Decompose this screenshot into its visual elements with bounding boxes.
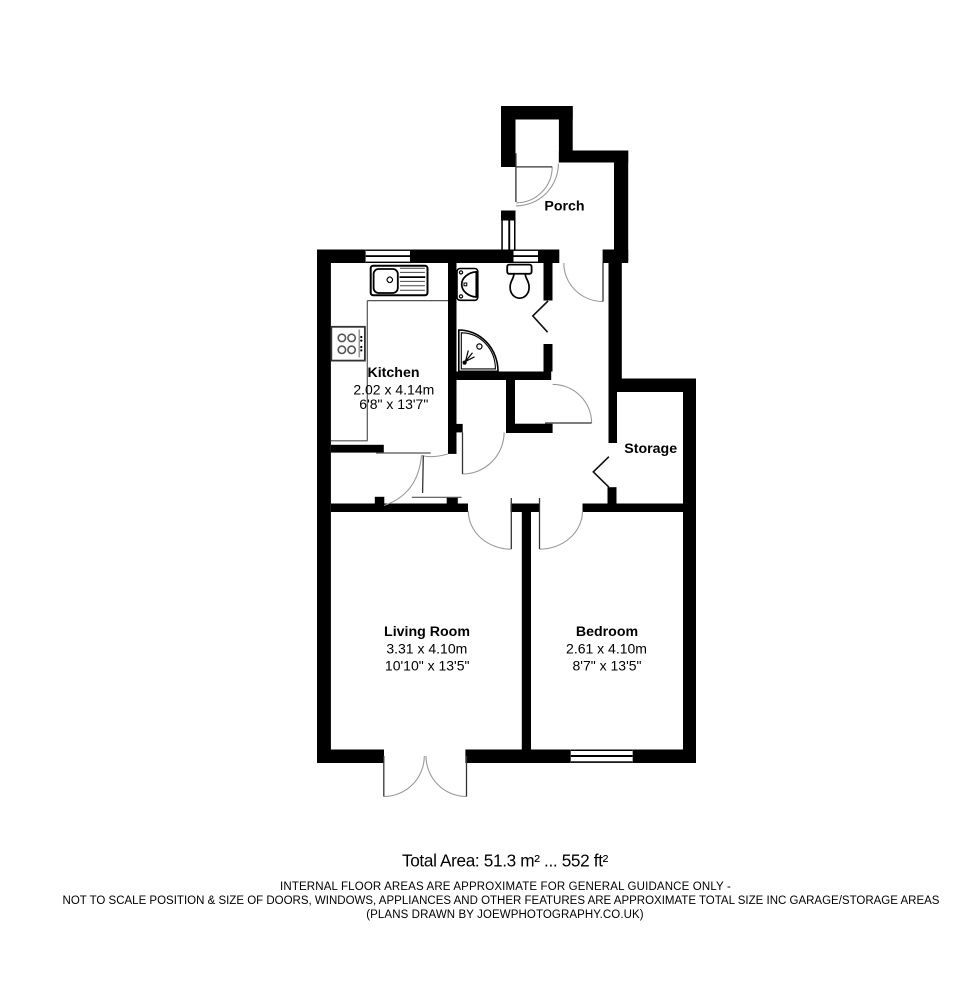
svg-text:2.61 x 4.10m: 2.61 x 4.10m	[566, 640, 647, 656]
svg-text:2.02 x 4.14m: 2.02 x 4.14m	[353, 381, 434, 397]
svg-text:INTERNAL FLOOR AREAS ARE APPRO: INTERNAL FLOOR AREAS ARE APPROXIMATE FOR…	[280, 881, 731, 893]
svg-text:10'10" x 13'5": 10'10" x 13'5"	[385, 657, 470, 673]
svg-text:Porch: Porch	[544, 198, 584, 214]
svg-text:NOT TO SCALE POSITION & SIZE O: NOT TO SCALE POSITION & SIZE OF DOORS, W…	[63, 895, 940, 907]
svg-text:6'8" x 13'7": 6'8" x 13'7"	[359, 396, 428, 412]
svg-text:Total Area: 51.3 m² ... 552 ft: Total Area: 51.3 m² ... 552 ft²	[402, 851, 609, 871]
svg-text:Living Room: Living Room	[384, 624, 470, 640]
svg-text:Storage: Storage	[624, 441, 677, 457]
svg-text:3.31 x 4.10m: 3.31 x 4.10m	[386, 640, 467, 656]
svg-text:8'7" x 13'5": 8'7" x 13'5"	[573, 657, 642, 673]
svg-text:(PLANS DRAWN BY JOEWPHOTOGRAPH: (PLANS DRAWN BY JOEWPHOTOGRAPHY.CO.UK)	[366, 909, 644, 921]
svg-text:Kitchen: Kitchen	[367, 365, 419, 381]
svg-text:Bedroom: Bedroom	[576, 624, 638, 640]
